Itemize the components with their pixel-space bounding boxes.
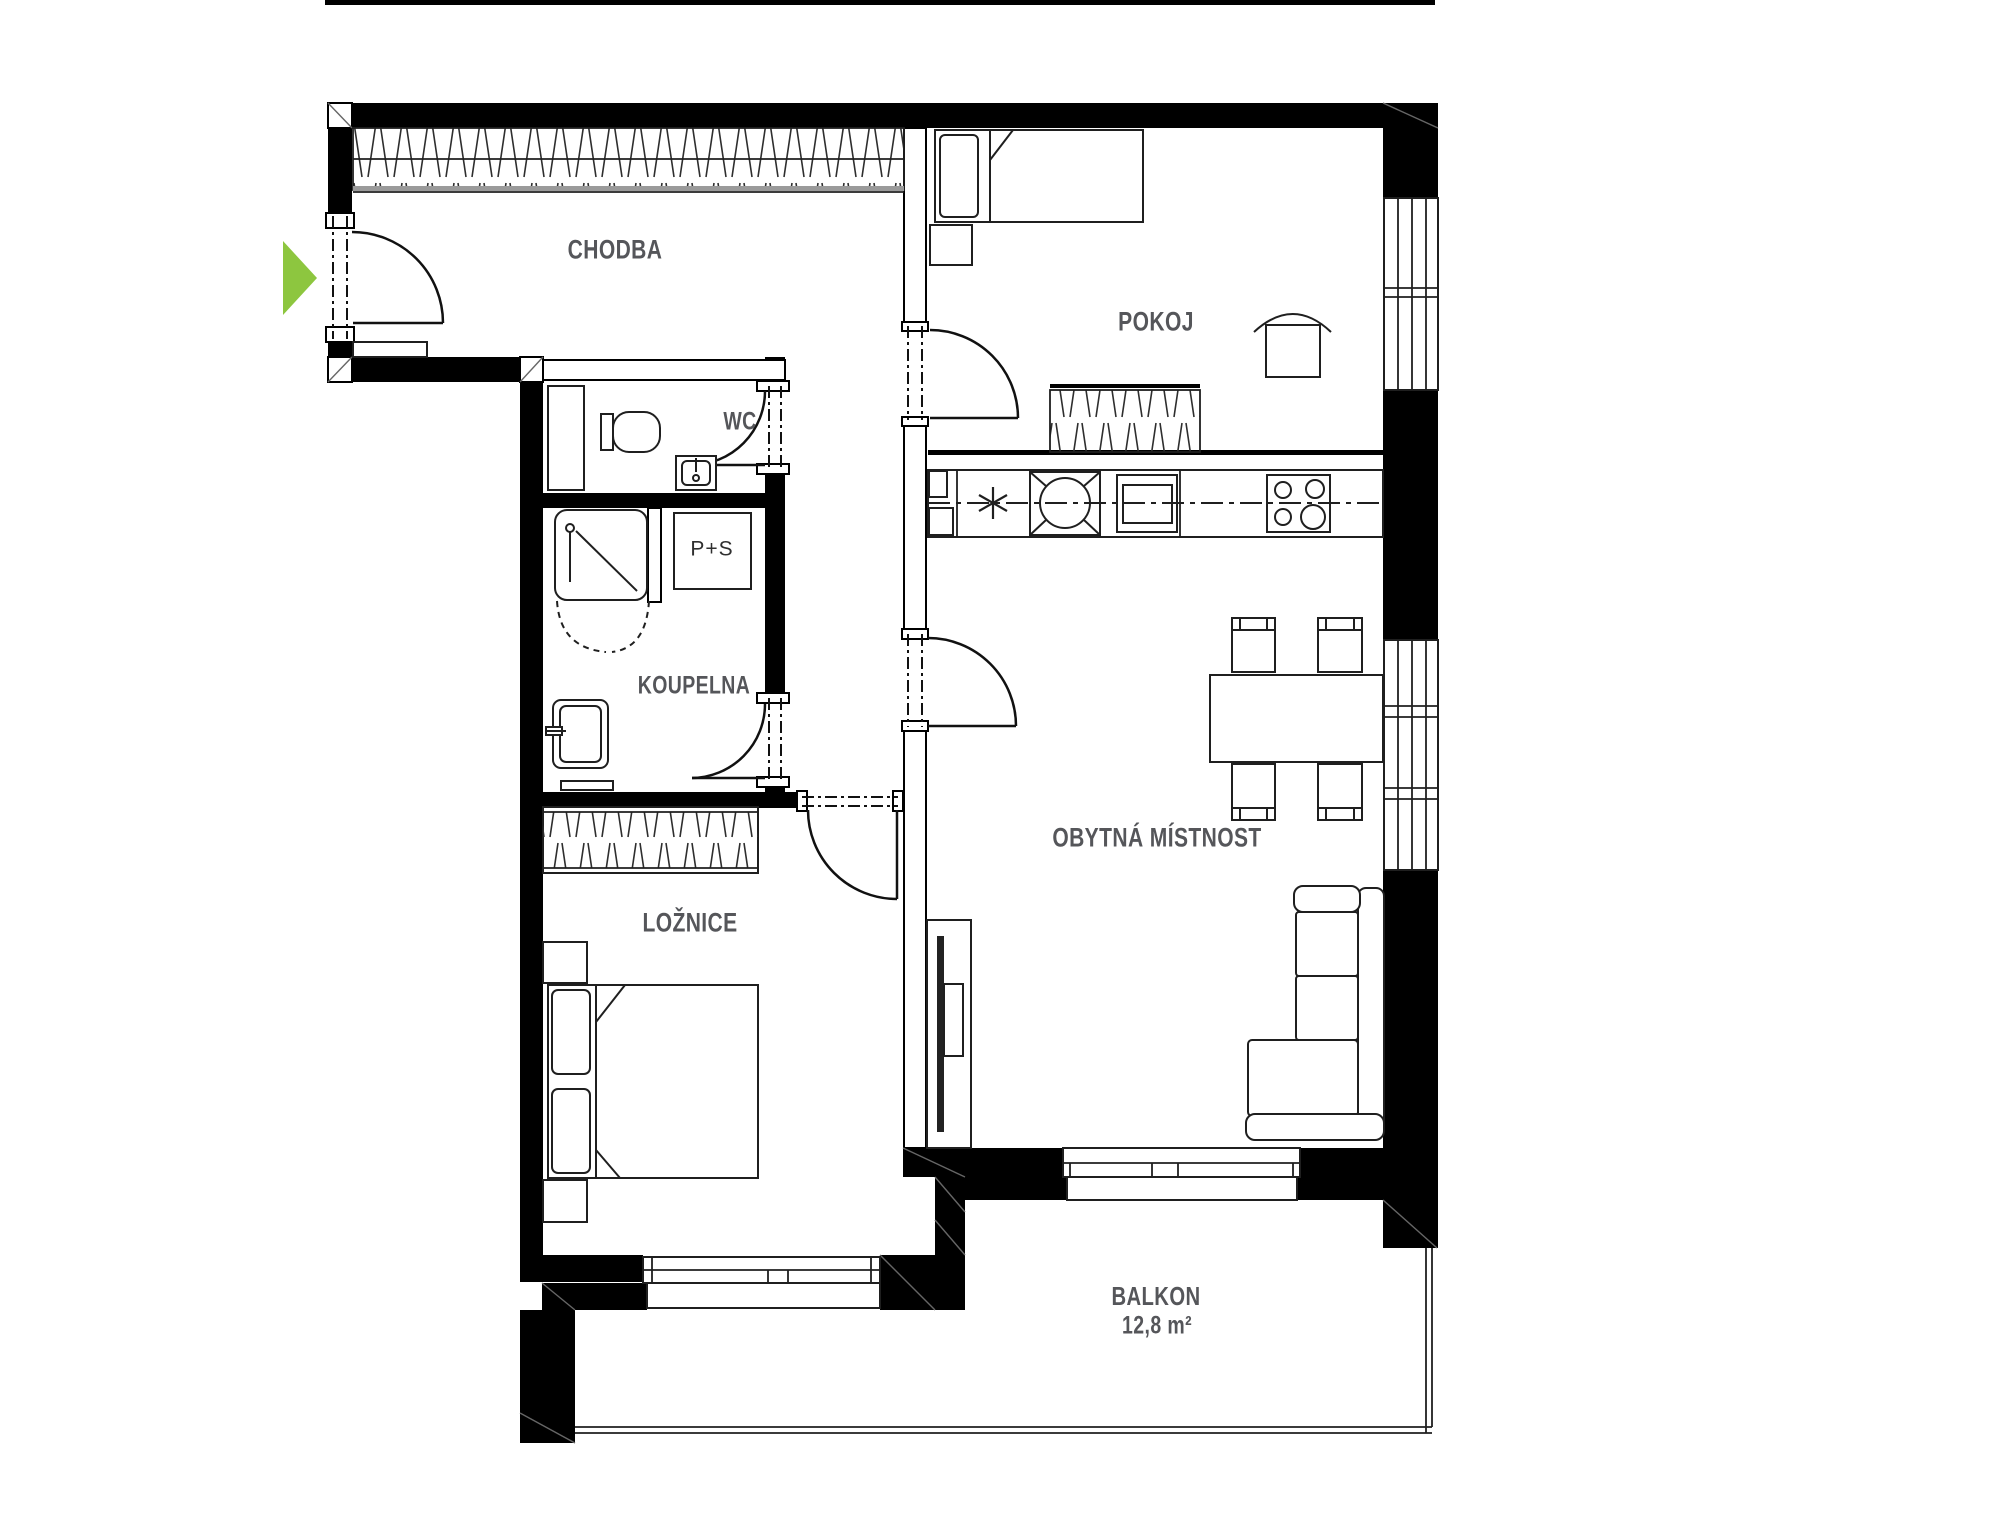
svg-text:BALKON: BALKON (1111, 1282, 1200, 1311)
svg-text:KOUPELNA: KOUPELNA (638, 671, 750, 699)
floor-plan-drawing: CHODBA POKOJ WC P+S KOUPELNA LOŽNICE OBY… (0, 0, 2000, 1524)
wall-left-main (520, 382, 543, 1255)
sofa-symbol (1246, 886, 1384, 1140)
wc-washbasin-symbol (676, 456, 716, 490)
kitchen-counter (928, 470, 1383, 537)
living-furniture (927, 618, 1384, 1148)
room-label-balkon: BALKON (1111, 1282, 1200, 1311)
hallway-closet-symbol (353, 128, 904, 192)
nightstand-bottom-symbol (543, 1180, 587, 1222)
wall-wc-koupelna-divider (543, 493, 765, 508)
washer-dryer-label: P+S (690, 538, 733, 561)
wall-top (328, 103, 1438, 128)
entrance-arrow-icon (283, 241, 317, 315)
wall-wc-right-b (765, 465, 785, 702)
bath-mat-symbol (561, 781, 613, 790)
chair-symbol (1318, 618, 1362, 672)
wall-chodba-bottom (328, 357, 543, 382)
shower-symbol (555, 510, 649, 652)
window-loznice (643, 1257, 880, 1308)
duct-shaft-symbol (548, 386, 584, 490)
svg-text:CHODBA: CHODBA (568, 235, 663, 265)
wall-top-strip (325, 0, 1435, 5)
double-bed-symbol (548, 985, 758, 1178)
bathroom-sink-symbol (546, 700, 608, 768)
chair-symbol (1232, 618, 1275, 672)
pokoj-door (902, 322, 1018, 426)
dining-table-symbol (1210, 675, 1383, 762)
toilet-symbol (601, 412, 660, 452)
svg-text:12,8 m²: 12,8 m² (1122, 1311, 1192, 1339)
wall-living-bottom-right (1300, 1148, 1383, 1177)
wall-right-b (1383, 390, 1438, 640)
shoe-bench-symbol (353, 342, 427, 357)
svg-text:POKOJ: POKOJ (1118, 307, 1194, 337)
pokoj-nightstand-symbol (930, 225, 972, 265)
tv-symbol (927, 920, 971, 1148)
wall-loznice-bottom-inner (520, 1255, 643, 1282)
floor-plan-page: CHODBA POKOJ WC P+S KOUPELNA LOŽNICE OBY… (0, 0, 2000, 1524)
svg-text:OBYTNÁ MÍSTNOST: OBYTNÁ MÍSTNOST (1052, 822, 1261, 853)
wall-left-upper (328, 128, 352, 213)
loznice-furniture (543, 807, 758, 1222)
wall-divider-lower (904, 726, 926, 1148)
window-balcony-door (1063, 1148, 1300, 1200)
wall-step-column (935, 1177, 965, 1255)
window-pokoj (1384, 198, 1438, 390)
wall-right-a (1383, 103, 1438, 198)
loznice-closet-symbol (543, 807, 758, 873)
room-label-obytna-mistnost: OBYTNÁ MÍSTNOST (1052, 822, 1261, 853)
wall-wc-top (543, 360, 785, 380)
wall-koupelna-bottom (520, 792, 805, 808)
svg-text:P+S: P+S (690, 538, 733, 561)
pokoj-bed-symbol (935, 130, 1143, 222)
pokoj-dresser-symbol (1050, 386, 1200, 452)
room-label-chodba: CHODBA (568, 235, 663, 265)
pokoj-furniture (930, 130, 1331, 452)
living-door (902, 629, 1016, 731)
wall-living-sill-left (965, 1177, 1067, 1200)
koupelna-door (692, 693, 789, 787)
pokoj-chair-symbol (1254, 314, 1331, 377)
wc-fixtures (548, 386, 716, 490)
wall-shower-stub (648, 508, 661, 602)
wall-divider-upper (904, 128, 926, 330)
entrance-door (326, 213, 443, 342)
room-label-wc: WC (723, 407, 756, 435)
wall-living-sill-right (1297, 1177, 1437, 1200)
room-label-loznice: LOŽNICE (642, 907, 737, 938)
wall-step-corner (880, 1255, 965, 1310)
room-label-pokoj: POKOJ (1118, 307, 1194, 337)
balkon-area-label: 12,8 m² (1122, 1311, 1192, 1339)
wall-living-bottom-left (903, 1148, 1063, 1177)
chair-symbol (1318, 764, 1362, 820)
wall-balcony-left-column (520, 1310, 575, 1443)
chair-symbol (1232, 764, 1275, 820)
nightstand-top-symbol (543, 942, 587, 983)
window-living (1384, 640, 1438, 870)
wall-divider-middle (904, 418, 926, 638)
svg-text:WC: WC (723, 407, 756, 435)
svg-text:LOŽNICE: LOŽNICE (642, 907, 737, 938)
loznice-door (797, 791, 903, 899)
kitchen-shaft-box (929, 471, 947, 497)
room-label-koupelna: KOUPELNA (638, 671, 750, 699)
